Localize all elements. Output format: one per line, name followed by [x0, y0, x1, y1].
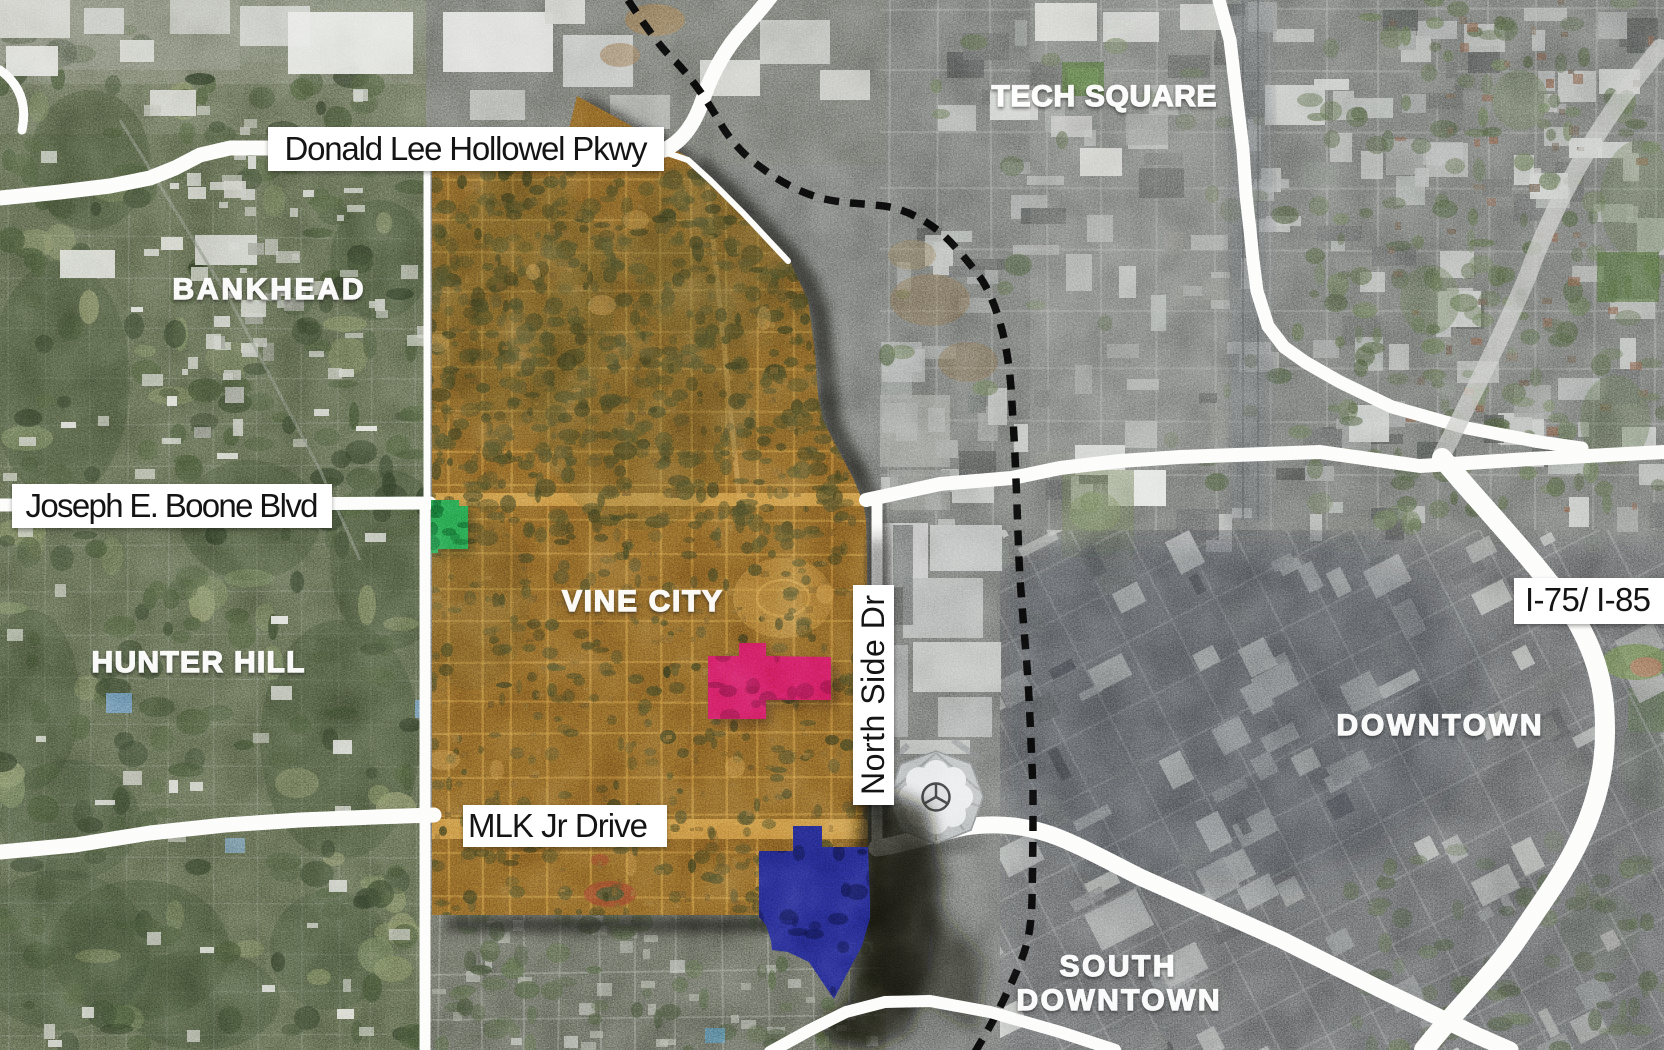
svg-text:MLK Jr Drive: MLK Jr Drive [468, 807, 648, 844]
svg-text:Joseph E. Boone Blvd: Joseph E. Boone Blvd [26, 487, 319, 524]
svg-text:HUNTER HILL: HUNTER HILL [92, 646, 305, 679]
svg-text:North Side Dr: North Side Dr [855, 595, 891, 795]
svg-text:I-75/ I-85: I-75/ I-85 [1525, 581, 1651, 618]
svg-text:VINE CITY: VINE CITY [562, 585, 722, 618]
svg-text:DOWNTOWN: DOWNTOWN [1017, 984, 1220, 1017]
svg-text:TECH SQUARE: TECH SQUARE [992, 80, 1217, 113]
svg-text:SOUTH: SOUTH [1060, 950, 1175, 983]
svg-text:DOWNTOWN: DOWNTOWN [1337, 709, 1542, 742]
svg-text:Donald Lee Hollowel Pkwy: Donald Lee Hollowel Pkwy [285, 130, 649, 167]
